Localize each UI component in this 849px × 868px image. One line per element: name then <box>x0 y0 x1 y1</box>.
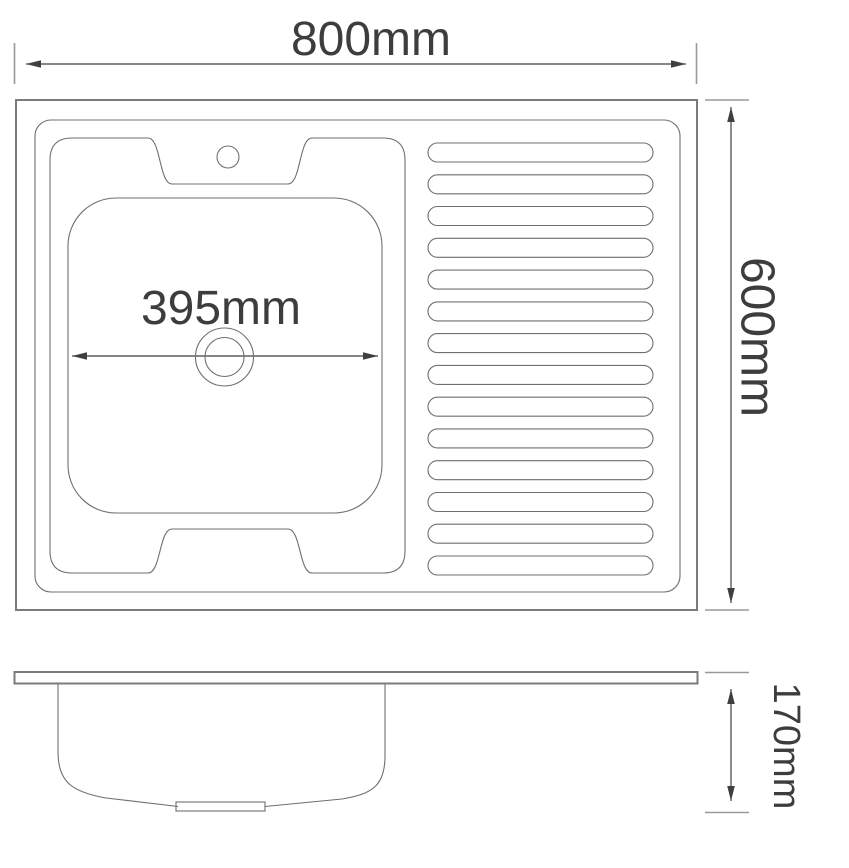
overall-depth-label: 600mm <box>731 257 784 417</box>
sink-outer-edge <box>16 100 697 610</box>
drainboard-rib <box>428 429 653 448</box>
drainboard-rib <box>428 270 653 289</box>
dimension-overall-width: 800mm <box>15 13 697 84</box>
dimension-overall-depth: 600mm <box>705 100 784 610</box>
drain-outer-circle <box>196 328 254 386</box>
dimension-bowl-depth: 170mm <box>705 673 807 813</box>
drainboard-rib <box>428 493 653 512</box>
side-drain-fitting <box>176 802 265 811</box>
basin-width-label: 395mm <box>141 282 301 335</box>
arrowhead-right-icon <box>671 60 686 68</box>
dimension-basin-width: 395mm <box>72 282 378 360</box>
drainboard-rib <box>428 238 653 257</box>
drainboard-rib <box>428 175 653 194</box>
faucet-hole <box>217 146 239 168</box>
arrowhead-left-icon <box>72 352 87 360</box>
drainboard-rib <box>428 365 653 384</box>
arrowhead-left-icon <box>26 60 41 68</box>
drainboard-rib <box>428 397 653 416</box>
drainboard-rib <box>428 556 653 575</box>
drain <box>196 328 254 386</box>
overall-width-label: 800mm <box>291 13 451 66</box>
arrowhead-down-icon <box>727 588 735 603</box>
side-rim <box>15 672 698 684</box>
drainboard-ribs <box>428 143 653 575</box>
arrowhead-down-icon <box>727 786 735 801</box>
drainboard-rib <box>428 143 653 162</box>
arrowhead-up-icon <box>727 107 735 122</box>
drainboard-rib <box>428 524 653 543</box>
drainboard-rib <box>428 461 653 480</box>
drainboard-rib <box>428 207 653 226</box>
side-view <box>15 672 698 811</box>
side-bowl-profile <box>58 684 385 807</box>
bowl-depth-label: 170mm <box>765 683 807 810</box>
plan-view: 395mm <box>16 100 697 610</box>
drain-inner-circle <box>205 338 244 377</box>
arrowhead-up-icon <box>727 689 735 704</box>
drainboard-rib <box>428 302 653 321</box>
sink-technical-drawing: 395mm 800mm 600mm <box>0 0 849 868</box>
arrowhead-right-icon <box>363 352 378 360</box>
drainboard-rib <box>428 334 653 353</box>
